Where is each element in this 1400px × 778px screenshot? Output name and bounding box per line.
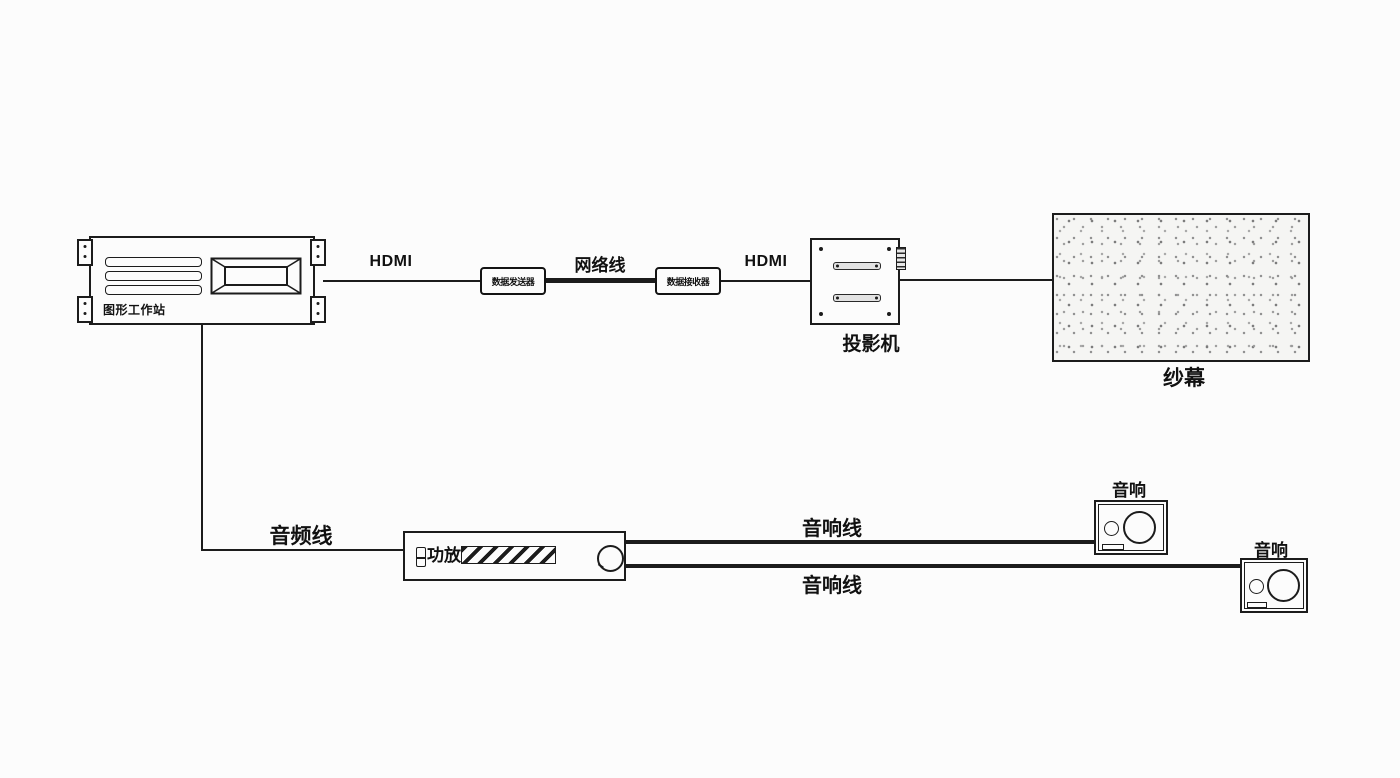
- screw-hole-icon: [84, 302, 87, 305]
- rack-ear-icon: [310, 296, 326, 323]
- screw-icon: [819, 312, 823, 316]
- screw-hole-icon: [317, 255, 320, 258]
- volume-knob-icon: [597, 545, 624, 572]
- projector-label: 投影机: [831, 329, 911, 356]
- audio-cable-vertical: [201, 321, 203, 551]
- workstation-box: 图形工作站: [89, 236, 315, 325]
- drive-slot-icon: [105, 257, 202, 267]
- gauze-screen-label: 纱幕: [1146, 362, 1222, 392]
- transmitter-box: 数据发送器: [480, 267, 546, 295]
- speaker-cable-bottom-label: 音响线: [788, 569, 876, 598]
- vent-dot-icon: [836, 297, 839, 300]
- hdmi-cable-2-label: HDMI: [738, 253, 794, 271]
- screw-icon: [887, 247, 891, 251]
- network-cable: [544, 278, 656, 283]
- screw-icon: [887, 312, 891, 316]
- speaker-port-icon: [1247, 602, 1267, 608]
- screw-hole-icon: [317, 245, 320, 248]
- screw-hole-icon: [84, 245, 87, 248]
- screw-hole-icon: [84, 255, 87, 258]
- rack-ear-icon: [310, 239, 326, 266]
- woofer-icon: [1267, 569, 1300, 602]
- speaker-top-box: [1094, 500, 1168, 555]
- transmitter-label: 数据发送器: [492, 275, 535, 288]
- audio-cable-label: 音频线: [256, 520, 346, 550]
- tweeter-icon: [1249, 579, 1264, 594]
- amp-input-connector-icon: [416, 547, 426, 567]
- projector-vent-icon: [833, 294, 881, 302]
- projector-connector-icon: [896, 247, 906, 270]
- network-cable-label: 网络线: [570, 251, 630, 276]
- tweeter-icon: [1104, 521, 1119, 536]
- screw-hole-icon: [317, 302, 320, 305]
- vent-dot-icon: [875, 265, 878, 268]
- speaker-top-label: 音响: [1096, 476, 1162, 501]
- hdmi-cable-2: [719, 280, 811, 282]
- speaker-port-icon: [1102, 544, 1124, 550]
- speaker-bottom-box: [1240, 558, 1308, 613]
- screw-hole-icon: [84, 312, 87, 315]
- amplifier-box: 功放: [403, 531, 626, 581]
- vent-dot-icon: [836, 265, 839, 268]
- screw-hole-icon: [317, 312, 320, 315]
- av-wiring-diagram: HDMI 网络线 HDMI 音频线 音响线 音响线 图形工作站 数据发送器 数据…: [0, 0, 1400, 778]
- amp-vent-hatch-icon: [461, 546, 556, 564]
- workstation-label: 图形工作站: [103, 301, 166, 318]
- receiver-box: 数据接收器: [655, 267, 721, 295]
- hdmi-cable-1-label: HDMI: [363, 253, 419, 271]
- receiver-label: 数据接收器: [667, 275, 710, 288]
- speaker-cable-bottom: [622, 564, 1242, 568]
- hdmi-cable-1: [323, 280, 480, 282]
- screw-icon: [819, 247, 823, 251]
- amplifier-label: 功放: [427, 541, 461, 566]
- woofer-icon: [1123, 511, 1156, 544]
- drive-slot-icon: [105, 271, 202, 281]
- vent-dot-icon: [875, 297, 878, 300]
- drive-slot-icon: [105, 285, 202, 295]
- rack-ear-icon: [77, 239, 93, 266]
- projector-box: [810, 238, 900, 325]
- bezel-panel-icon: [210, 257, 302, 295]
- gauze-screen-box: [1052, 213, 1310, 362]
- rack-ear-icon: [77, 296, 93, 323]
- speaker-cable-top-label: 音响线: [788, 512, 876, 541]
- projector-vent-icon: [833, 262, 881, 270]
- projector-screen-cable: [897, 279, 1053, 281]
